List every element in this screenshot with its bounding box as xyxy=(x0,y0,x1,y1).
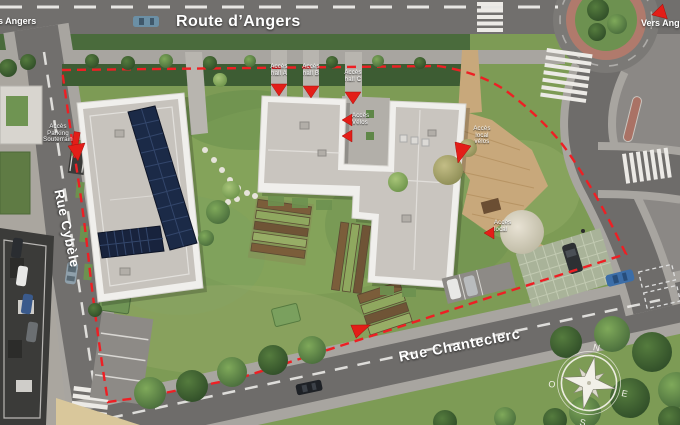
annotation-acces-local-2: Accès local xyxy=(494,220,520,233)
pedestrian xyxy=(581,229,585,233)
tree xyxy=(176,370,208,402)
tree xyxy=(203,56,217,70)
roof-unit xyxy=(120,268,130,275)
roof-unit xyxy=(402,215,411,222)
tree xyxy=(588,23,606,41)
tree xyxy=(433,410,457,425)
tree xyxy=(632,332,672,372)
roof-unit xyxy=(428,130,436,136)
tree xyxy=(198,230,214,246)
tree xyxy=(159,54,173,68)
tree xyxy=(217,357,247,387)
skylight xyxy=(400,135,407,142)
tree xyxy=(494,407,516,425)
tree xyxy=(550,326,582,358)
skylight xyxy=(422,139,429,146)
green-roof-building xyxy=(0,152,30,214)
roof-unit xyxy=(318,150,326,156)
roof-unit xyxy=(115,130,124,137)
tree xyxy=(213,73,227,87)
site-plan-canvas: N E S O xyxy=(0,0,680,425)
annotation-acces-local: Accès local vélos xyxy=(466,126,498,146)
tree xyxy=(587,0,609,21)
annotation-acces-hall-b: Accès hall B xyxy=(298,64,324,77)
annotation-acces-hall-a: Accès hall A xyxy=(266,64,292,77)
building-a xyxy=(71,93,207,306)
tree xyxy=(20,54,36,70)
tree xyxy=(658,406,680,425)
tree xyxy=(388,172,408,192)
tree xyxy=(607,14,627,34)
tree xyxy=(372,55,384,67)
tree xyxy=(222,181,240,199)
roof-unit xyxy=(300,122,309,129)
tree xyxy=(206,200,230,224)
annotation-acces-hall-c: Accès hall C xyxy=(340,70,366,83)
tree xyxy=(88,303,102,317)
compass-south: S xyxy=(579,417,587,425)
tree xyxy=(658,372,680,408)
car-route-dangers xyxy=(133,16,159,27)
street-label-route-dangers: Route d’Angers xyxy=(176,13,301,31)
tree xyxy=(258,345,288,375)
skylight xyxy=(411,137,418,144)
tree xyxy=(134,377,166,409)
tree xyxy=(121,56,135,70)
tree xyxy=(414,57,426,69)
annotation-acces-velos: Accès Vélos xyxy=(352,113,376,126)
tree xyxy=(244,55,256,67)
tree xyxy=(543,408,567,425)
compass-north: N xyxy=(592,342,601,354)
street-label-vers-angers-left: Vers Angers xyxy=(0,16,36,26)
tree xyxy=(85,54,99,68)
tree xyxy=(326,56,338,68)
street-label-vers-angers-right: Vers Angers xyxy=(641,18,680,28)
annotation-acces-parking: Accès Parking Souterrain xyxy=(38,124,78,144)
aerial-site-plan: N E S O Route d’Angers Vers Angers Vers … xyxy=(0,0,680,425)
compass-west: O xyxy=(547,379,556,390)
tree xyxy=(298,336,326,364)
